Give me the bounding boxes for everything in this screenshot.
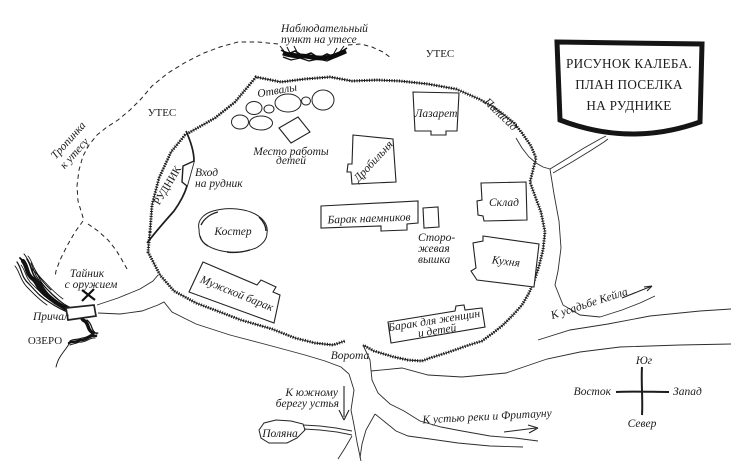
svg-text:Причал: Причал [32, 311, 69, 323]
svg-text:НА РУДНИКЕ: НА РУДНИКЕ [586, 98, 671, 113]
svg-text:Костер: Костер [213, 226, 251, 238]
svg-text:РИСУНОК КАЛЕБА.: РИСУНОК КАЛЕБА. [566, 56, 692, 71]
svg-text:Восток: Восток [574, 386, 612, 398]
svg-text:берегу устья: берегу устья [276, 398, 339, 410]
svg-text:Юг: Юг [635, 355, 653, 367]
svg-text:Ворота: Ворота [331, 350, 370, 362]
svg-text:Лазарет: Лазарет [414, 108, 458, 120]
svg-text:Север: Север [628, 418, 657, 430]
svg-text:УТЕС: УТЕС [148, 107, 177, 119]
svg-text:Поляна: Поляна [261, 428, 298, 440]
svg-text:ПЛАН ПОСЕЛКА: ПЛАН ПОСЕЛКА [575, 77, 683, 92]
svg-text:ОЗЕРО: ОЗЕРО [28, 335, 62, 347]
svg-text:УТЕС: УТЕС [426, 48, 455, 60]
svg-text:Склад: Склад [489, 197, 519, 209]
svg-text:с оружием: с оружием [65, 279, 118, 291]
svg-text:Запад: Запад [673, 386, 702, 398]
svg-text:пункт на утесе: пункт на утесе [281, 34, 357, 46]
svg-text:вышка: вышка [418, 254, 451, 266]
svg-text:детей: детей [276, 154, 306, 167]
svg-text:на рудник: на рудник [195, 178, 243, 190]
